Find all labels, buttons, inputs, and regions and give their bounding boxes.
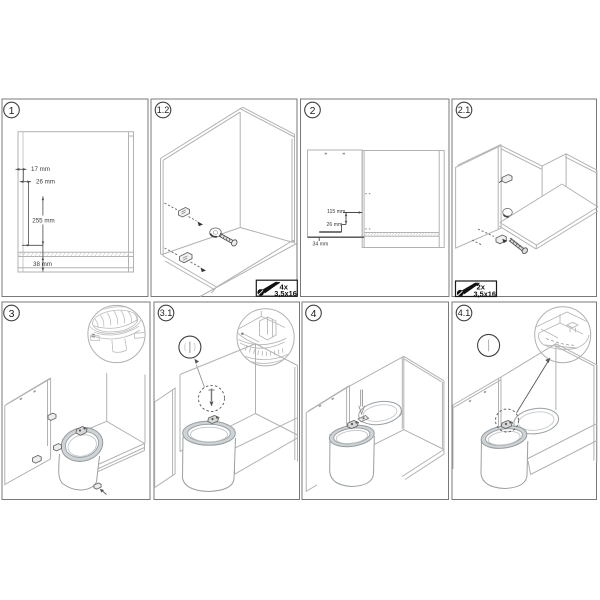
svg-text:255 mm: 255 mm <box>32 218 54 225</box>
svg-text:1.2: 1.2 <box>157 105 170 115</box>
svg-text:26 mm: 26 mm <box>36 179 55 186</box>
svg-text:4: 4 <box>311 308 317 320</box>
svg-text:38 mm: 38 mm <box>33 261 52 268</box>
svg-text:115 mm: 115 mm <box>327 209 345 215</box>
svg-text:3: 3 <box>9 308 15 320</box>
svg-text:3,5x16: 3,5x16 <box>274 289 297 298</box>
svg-text:3.1: 3.1 <box>160 308 173 318</box>
svg-text:26 mm: 26 mm <box>327 222 343 228</box>
svg-text:2.1: 2.1 <box>458 105 471 115</box>
svg-text:3,5x16: 3,5x16 <box>474 289 497 298</box>
svg-text:17 mm: 17 mm <box>31 166 50 173</box>
svg-text:4.1: 4.1 <box>458 308 471 318</box>
svg-text:34 mm: 34 mm <box>313 241 329 247</box>
svg-text:2: 2 <box>310 105 316 117</box>
svg-text:1: 1 <box>9 105 15 117</box>
